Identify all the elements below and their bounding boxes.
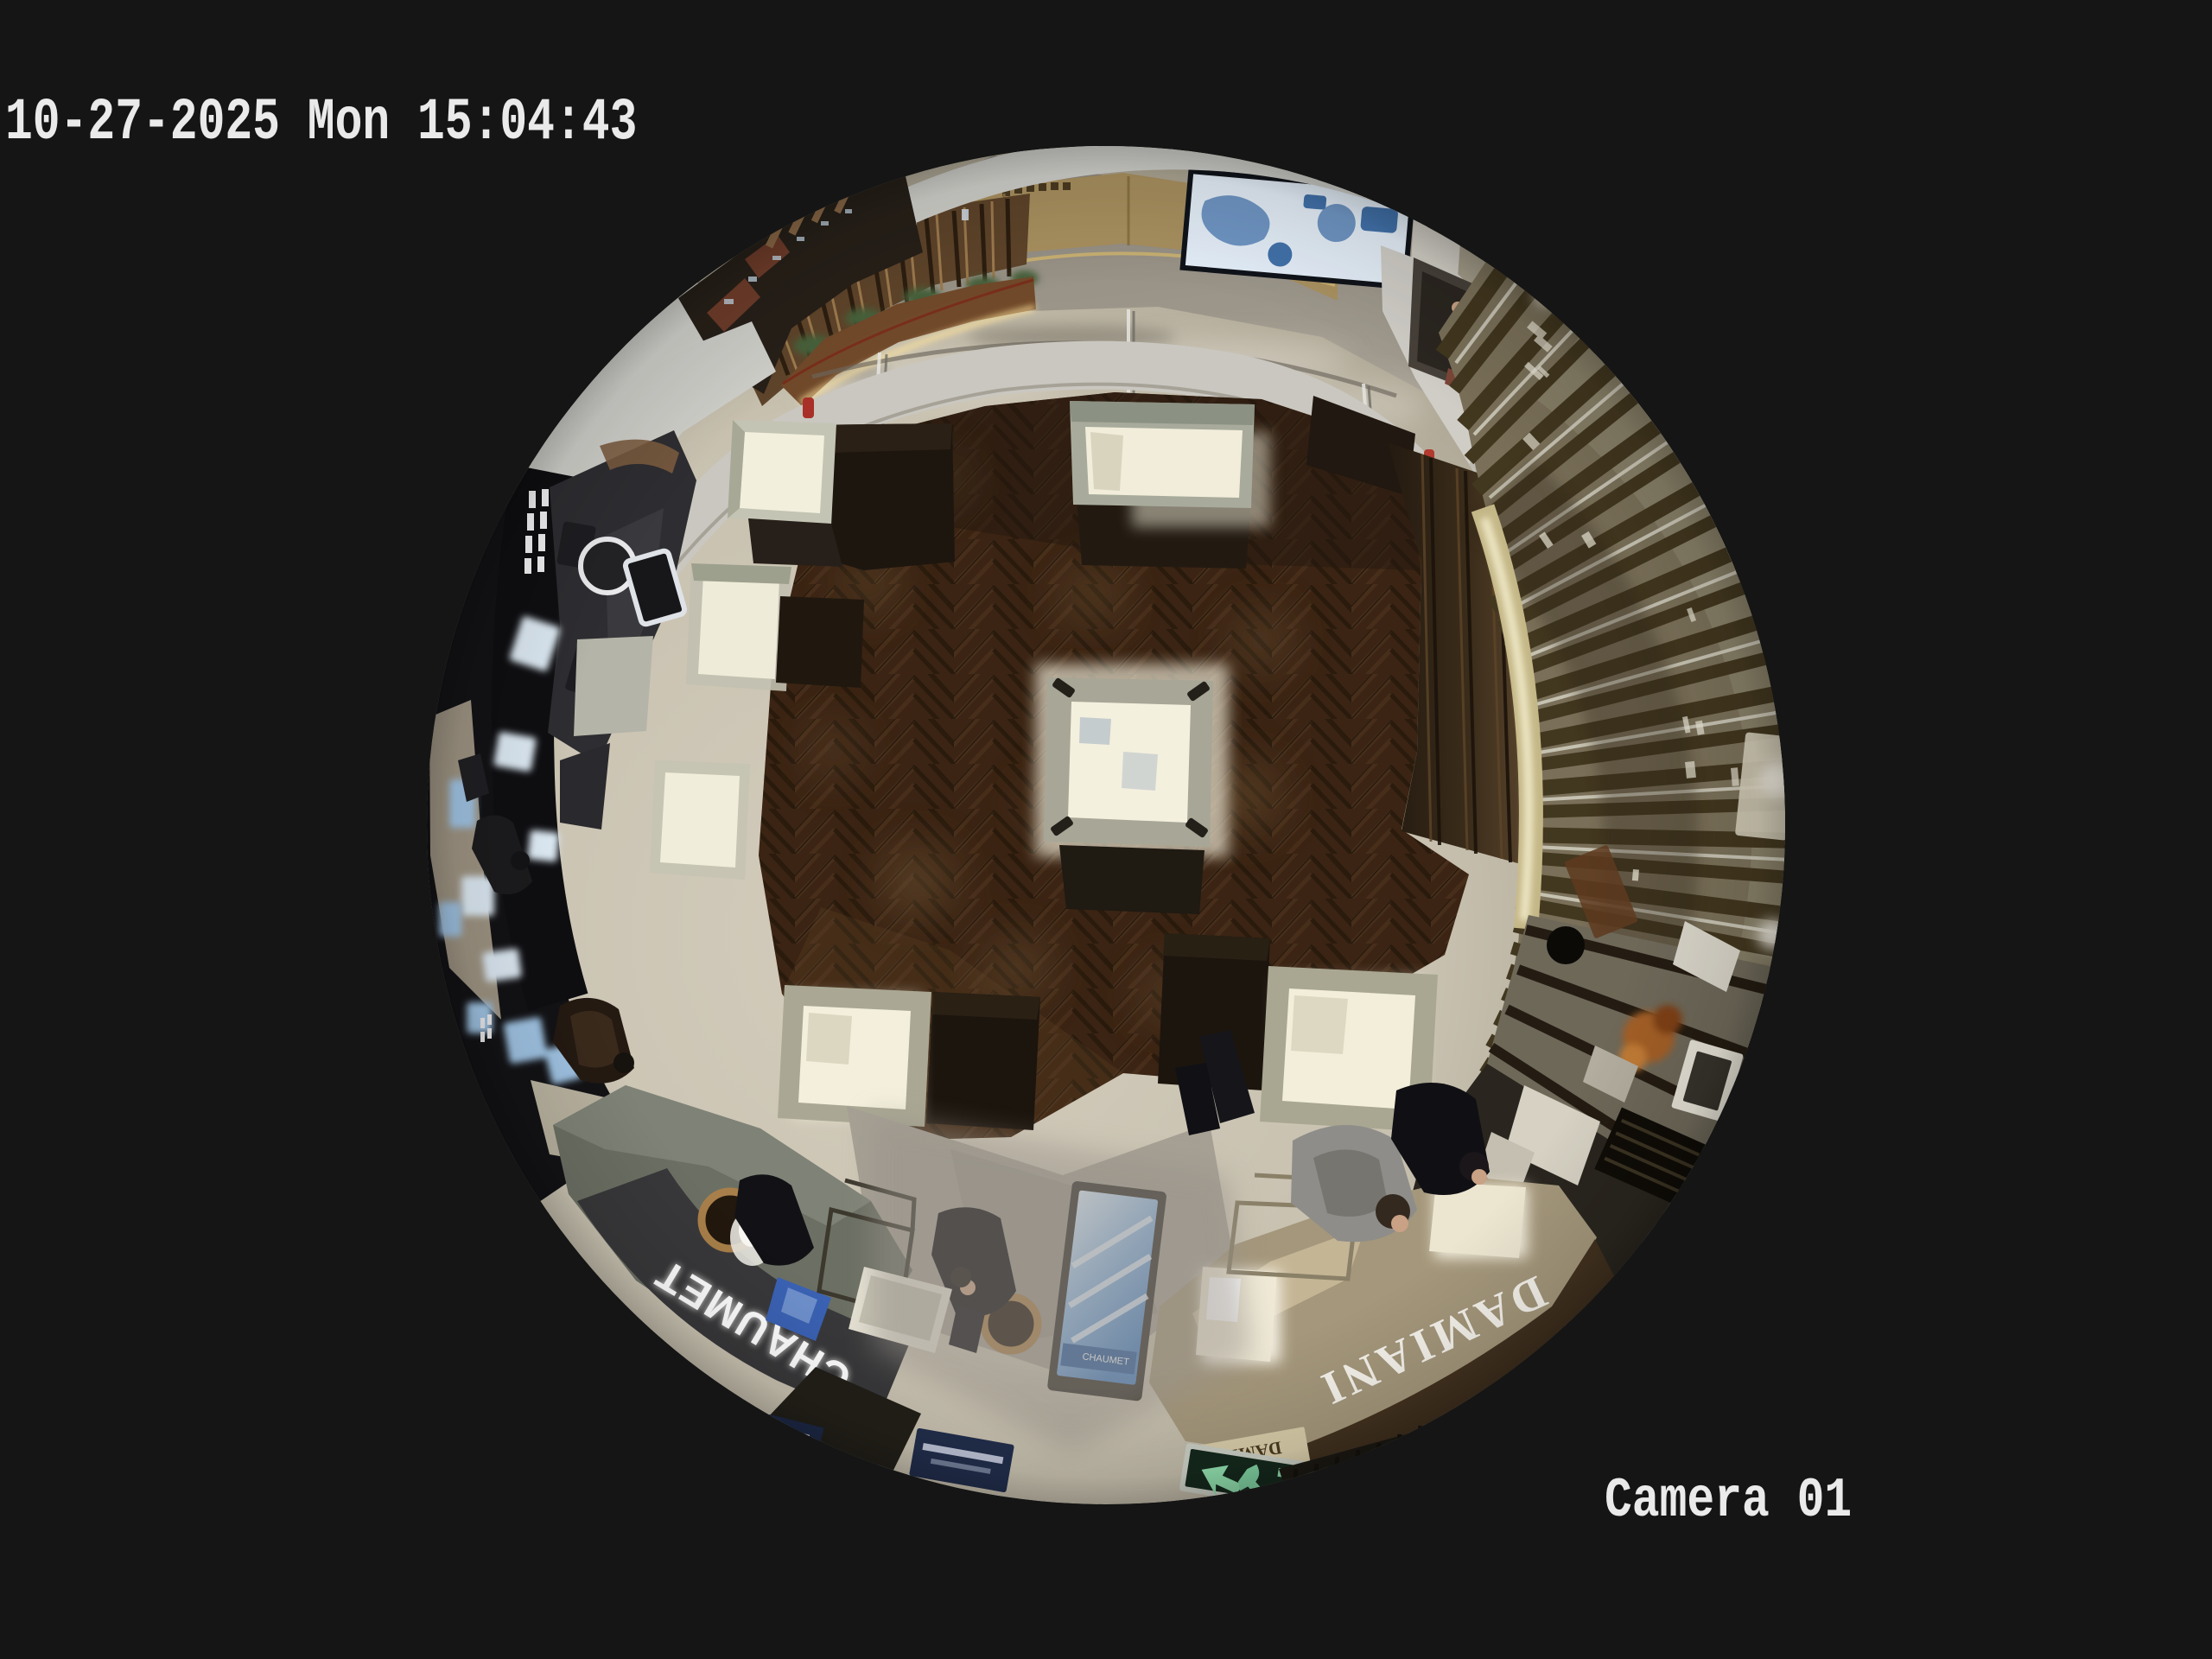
svg-text:10-27-2025 Mon 15:04:43: 10-27-2025 Mon 15:04:43 — [5, 90, 637, 156]
svg-text:Camera 01: Camera 01 — [1605, 1469, 1852, 1532]
